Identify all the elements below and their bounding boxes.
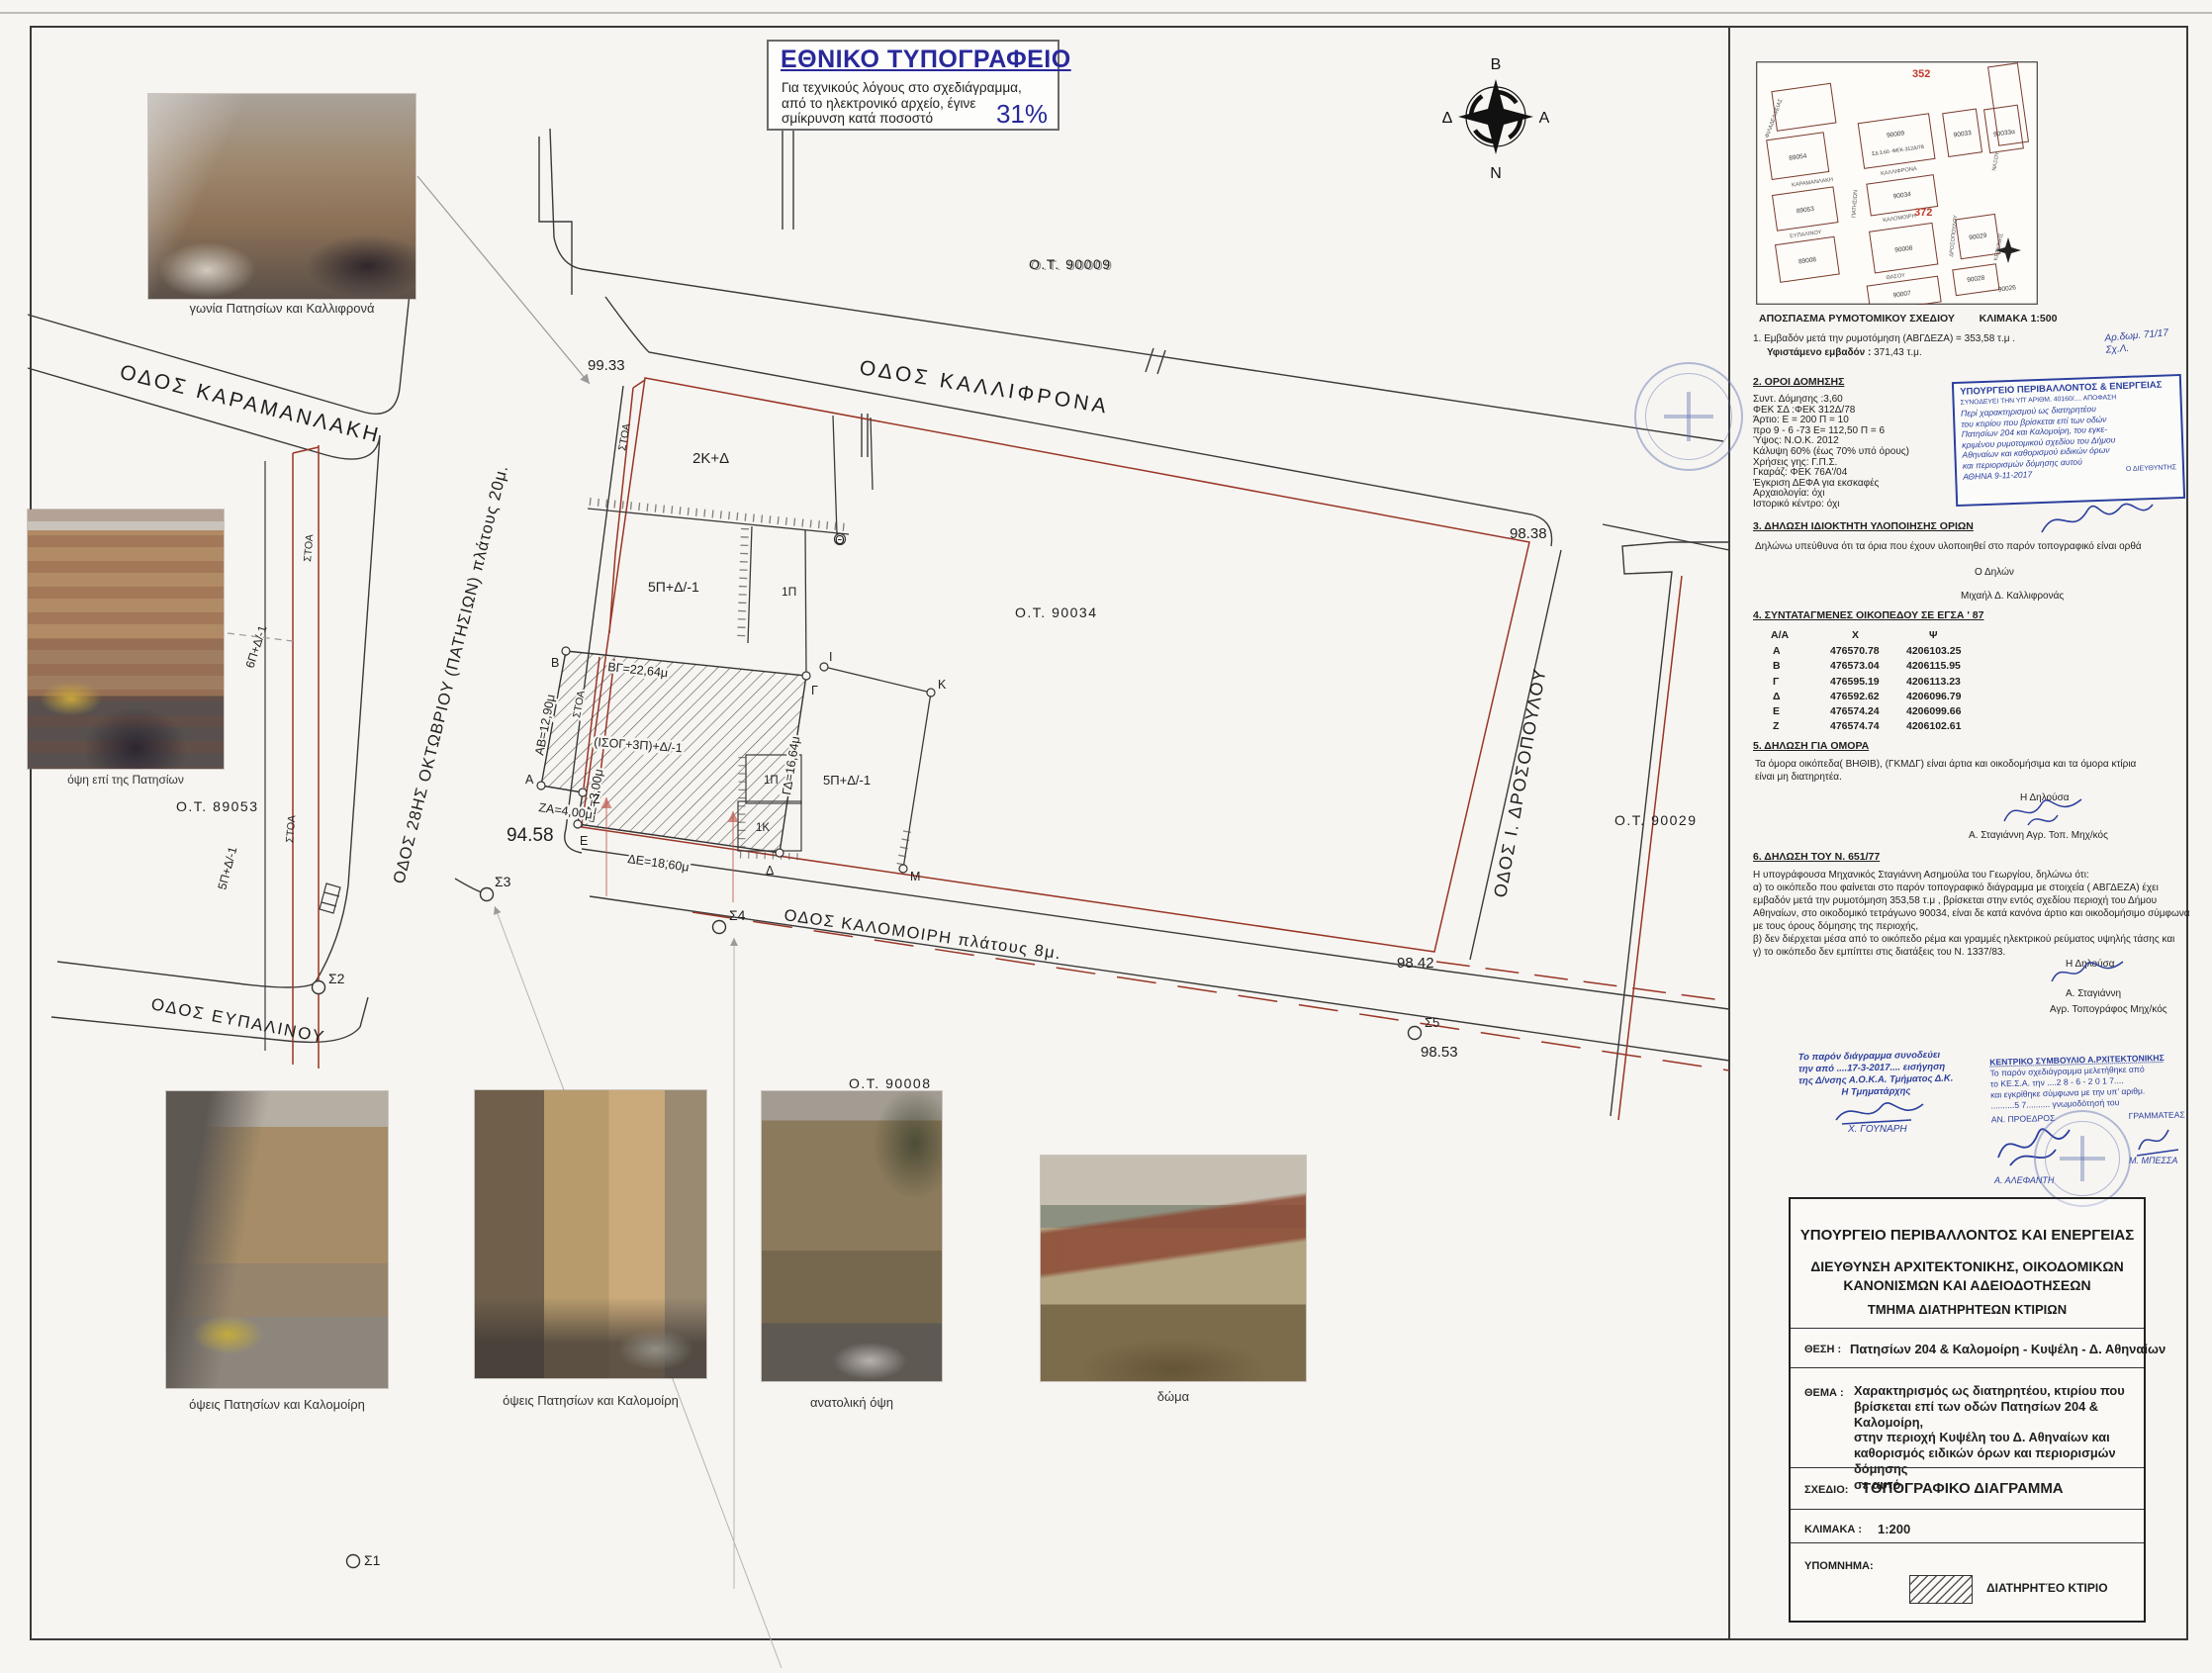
- building-5pd-outline: [741, 526, 806, 676]
- photo-caption: δώμα: [1041, 1389, 1306, 1404]
- street-label-kalifrona: ΟΔΟΣ ΚΑΛΛΙΦΡΟΝΑ: [858, 356, 1111, 418]
- building-right-5pd-outline: [824, 667, 931, 869]
- building-label-1p-upper: 1Π: [782, 585, 796, 599]
- seal-cross: [2060, 1157, 2104, 1161]
- section5-body: Τα όμορα οικόπεδα( ΒΗΘΙΒ), (ΓΚΜΔΓ) είναι…: [1755, 758, 2136, 784]
- topographic-diagram-sheet: ΟΔΟΣ ΚΑΛΛΙΦΡΟΝΑ ΟΔΟΣ ΚΑΡΑΜΑΝΛΑΚΗ ΟΔΟΣ 28…: [0, 0, 2212, 1673]
- street-label-kalomoiri: ΟΔΟΣ ΚΑΛΟΜΟΙΡΗ πλάτους 8μ.: [783, 906, 1062, 963]
- section6-declarer-name: Α. Σταγιάννη: [2066, 987, 2121, 1000]
- inset-city-map: 89054 90009 ΣΔ 3.60 -ΦΕΚ-312Δ/78 90033 9…: [1756, 61, 2038, 305]
- elevation-9853: 98.53: [1421, 1044, 1458, 1061]
- elevation-9842: 98.42: [1397, 955, 1434, 972]
- coordinates-table: Α/Α Χ Ψ Α476570.784206103.25 Β476573.044…: [1753, 629, 1990, 736]
- building-label-5pd-left: 5Π+Δ/-1: [215, 845, 239, 891]
- sxedio-value: ΤΟΠΟΓΡΑΦΙΚΟ ΔΙΑΓΡΑΜΜΑ: [1862, 1480, 2064, 1497]
- thema-value: Χαρακτηρισμός ως διατηρητέου, κτιρίου πο…: [1854, 1383, 2135, 1493]
- survey-label-s2: Σ2: [328, 971, 345, 986]
- coords-row: Ε476574.244206099.66: [1753, 705, 1990, 720]
- map-caption-row: ΑΠΟΣΠΑΣΜΑ ΡΥΜΟΤΟΜΙΚΟΥ ΣΧΕΔΙΟΥ ΚΛΙΜΑΚΑ 1:…: [1759, 313, 2057, 325]
- round-seal-faded: [1634, 362, 1743, 471]
- stoa-label-4: ΣΤΟΑ: [284, 815, 298, 844]
- notice-line2: από το ηλεκτρονικό αρχείο, έγινε: [782, 96, 975, 111]
- svg-text:Θ: Θ: [835, 533, 845, 547]
- accompany-name: Χ. ΓΟΥΝΑΡΗ: [1848, 1124, 1907, 1135]
- survey-label-s1: Σ1: [364, 1552, 381, 1568]
- stamp-date: ΑΘΗΝΑ 9-11-2017: [1963, 469, 2032, 481]
- photo-roof-terrace: [1041, 1156, 1306, 1381]
- building-label-5pd-right: 5Π+Δ/-1: [823, 773, 871, 788]
- stamp-role: Ο ΔΙΕΥΘΥΝΤΗΣ: [2126, 464, 2176, 476]
- stoa-label-3: ΣΤΟΑ: [302, 534, 316, 563]
- block-label-ot90034: Ο.Τ. 90034: [1015, 604, 1098, 620]
- legend-item-label: ΔΙΑΤΗΡΗΤΈΟ ΚΤΙΡΙΟ: [1986, 1581, 2108, 1595]
- klimaka-label: ΚΛΙΜΑΚΑ :: [1804, 1524, 1862, 1535]
- coords-row: Δ476592.624206096.79: [1753, 691, 1990, 705]
- svg-text:Ε: Ε: [580, 834, 588, 848]
- section5-signature: [1998, 791, 2087, 833]
- compass-east-letter: Α: [1539, 110, 1550, 127]
- kesa-round-seal: [2034, 1110, 2131, 1207]
- map-caption: ΑΠΟΣΠΑΣΜΑ ΡΥΜΟΤΟΜΙΚΟΥ ΣΧΕΔΙΟΥ: [1759, 313, 1955, 325]
- block-label-ot90029: Ο.Τ. 90029: [1614, 812, 1698, 828]
- svg-text:ΔΕ=18,60μ: ΔΕ=18,60μ: [627, 852, 691, 875]
- titleblock-ministry: ΥΠΟΥΡΓΕΙΟ ΠΕΡΙΒΑΛΛΟΝΤΟΣ ΚΑΙ ΕΝΕΡΓΕΙΑΣ: [1791, 1227, 2144, 1244]
- survey-label-s5: Σ5: [1425, 1015, 1439, 1030]
- section6-title: 6. ΔΗΛΩΣΗ ΤΟΥ Ν. 651/77: [1753, 851, 1880, 863]
- photo-corner-patision-kalifrona: [148, 94, 415, 299]
- notice-line1: Για τεχνικούς λόγους στο σχεδιάγραμμα,: [782, 80, 1022, 95]
- titleblock-directorate-2: ΚΑΝΟΝΙΣΜΩΝ ΚΑΙ ΑΔΕΙΟΔΟΤΗΣΕΩΝ: [1791, 1277, 2144, 1293]
- section2-terms-list: Συντ. Δόμησης :3,60ΦΕΚ ΣΔ :ΦΕΚ 312Δ/78 Ά…: [1753, 395, 1909, 511]
- section3-body: Δηλώνω υπεύθυνα ότι τα όρια που έχουν υλ…: [1755, 540, 2186, 553]
- coords-row: Α476570.784206103.25: [1753, 645, 1990, 660]
- svg-text:Δ: Δ: [766, 864, 774, 878]
- elevation-9458: 94.58: [507, 825, 554, 846]
- block-label-ot90009: Ο.Τ. 90009: [1029, 256, 1112, 272]
- street-label-eupalinou: ΟΔΟΣ ΕΥΠΑΛΙΝΟΥ: [149, 994, 326, 1047]
- building-label-5pd: 5Π+Δ/-1: [648, 579, 699, 595]
- photo-caption: όψη επί της Πατησίων: [28, 773, 224, 787]
- stoa-label-1: ΣΤΟΑ: [616, 422, 633, 451]
- coords-row: Β476573.044206115.95: [1753, 660, 1990, 675]
- survey-label-s3: Σ3: [495, 874, 511, 889]
- photo-patision-facade: [28, 510, 224, 769]
- section3-declarer-name: Μιχαήλ Δ. Καλλιφρονάς: [1961, 590, 2064, 603]
- titleblock-rule: [1791, 1467, 2144, 1468]
- street-label-karamanlaki: ΟΔΟΣ ΚΑΡΑΜΑΝΛΑΚΗ: [118, 361, 383, 448]
- section5-declarer-name: Α. Σταγιάννη Αγρ. Τοπ. Μηχ/κός: [1969, 829, 2108, 842]
- north-compass: Β Ν Δ Α: [1422, 44, 1570, 187]
- ypomnima-label: ΥΠΟΜΝΗΜΑ:: [1804, 1560, 1874, 1572]
- red-boundary-lines: [293, 378, 1729, 1120]
- section1-line2: Υφιστάμενο εμβαδόν : 371,43 τ.μ.: [1767, 346, 1922, 359]
- svg-text:Κ: Κ: [938, 678, 947, 692]
- map-ref-352: 352: [1912, 68, 1930, 80]
- section6-declarer-title: Αγρ. Τοπογράφος Μηχ/κός: [2050, 1003, 2167, 1016]
- svg-text:Γ: Γ: [811, 684, 818, 697]
- thesi-label: ΘΕΣΗ :: [1804, 1344, 1841, 1355]
- notice-line3: σμίκρυνση κατά ποσοστό: [782, 111, 933, 126]
- kesa-name-right: Μ. ΜΠΕΣΣΑ: [2129, 1156, 2177, 1165]
- photo-caption: γωνία Πατησίων και Καλλιφρονά: [153, 301, 411, 316]
- section5-title: 5. ΔΗΛΩΣΗ ΓΙΑ ΟΜΟΡΑ: [1753, 740, 1869, 752]
- photo-patision-kalomoiri-1: [166, 1091, 388, 1388]
- survey-label-s4: Σ4: [729, 907, 746, 923]
- accompany-stamp: Το παρόν διάγραμμα συνοδεύει την από ...…: [1798, 1050, 1954, 1100]
- street-label-patision: ΟΔΟΣ 28ΗΣ ΟΚΤΩΒΡΙΟΥ (ΠΑΤΗΣΙΩΝ) πλάτους 2…: [390, 463, 511, 885]
- building-label-2kd: 2Κ+Δ: [692, 450, 729, 467]
- compass-south-letter: Ν: [1490, 165, 1502, 182]
- svg-text:Ι: Ι: [829, 650, 832, 664]
- compass-north-letter: Β: [1491, 56, 1502, 73]
- map-ref-372: 372: [1914, 207, 1932, 219]
- coords-row: Γ476595.194206113.23: [1753, 676, 1990, 691]
- titleblock-rule: [1791, 1367, 2144, 1368]
- street-kalomoiri-lines: [455, 849, 1729, 1061]
- elevation-9933: 99.33: [588, 357, 625, 374]
- section1-line1: 1. Εμβαδόν μετά την ρυμοτόμηση (ΑΒΓΔΕΖΑ)…: [1753, 332, 2015, 345]
- coords-row: Ζ476574.744206102.61: [1753, 720, 1990, 735]
- legend-hatch-swatch: [1909, 1575, 1973, 1604]
- map-caption-scale: ΚΛΙΜΑΚΑ 1:500: [1980, 313, 2058, 325]
- ministry-signature: [2038, 495, 2157, 540]
- ministry-approval-stamp: ΥΠΟΥΡΓΕΙΟ ΠΕΡΙΒΑΛΛΟΝΤΟΣ & ΕΝΕΡΓΕΙΑΣ ΣΥΝΟ…: [1952, 374, 2185, 507]
- section6-body: Η υπογράφουσα Μηχανικός Σταγιάννη Ασημού…: [1753, 869, 2190, 959]
- elevation-9838: 98.38: [1510, 525, 1547, 542]
- photo-caption: όψεις Πατησίων και Καλομοίρη: [166, 1397, 388, 1412]
- svg-text:Ζ: Ζ: [593, 792, 600, 806]
- block-label-ot89053: Ο.Τ. 89053: [176, 798, 259, 814]
- photo-leader-arrows: [228, 176, 782, 1668]
- section3-title: 3. ΔΗΛΩΣΗ ΙΔΙΟΚΤΗΤΗ ΥΛΟΠΟΙΗΣΗΣ ΟΡΙΩΝ: [1753, 520, 1974, 532]
- thema-label: ΘΕΜΑ :: [1804, 1387, 1844, 1399]
- photo-caption: ανατολική όψη: [762, 1395, 942, 1410]
- block-label-ot90008: Ο.Τ. 90008: [849, 1075, 932, 1091]
- title-block: ΥΠΟΥΡΓΕΙΟ ΠΕΡΙΒΑΛΛΟΝΤΟΣ ΚΑΙ ΕΝΕΡΓΕΙΑΣ ΔΙ…: [1789, 1197, 2146, 1623]
- section2-title: 2. ΟΡΟΙ ΔΟΜΗΣΗΣ: [1753, 376, 1844, 388]
- photo-patision-kalomoiri-2: [475, 1090, 706, 1378]
- titleblock-rule: [1791, 1328, 2144, 1329]
- notice-title: ΕΘΝΙΚΟ ΤΥΠΟΓΡΑΦΕΙΟ: [781, 46, 1071, 74]
- svg-text:Β: Β: [551, 656, 559, 670]
- thesi-value: Πατησίων 204 & Καλομοίρη - Κυψέλη - Δ. Α…: [1850, 1342, 2166, 1356]
- notice-percent: 31%: [996, 99, 1048, 130]
- section6-signature: [2048, 956, 2127, 989]
- section4-title: 4. ΣΥΝΤΑΤΑΓΜΕΝΕΣ ΟΙΚΟΠΕΔΟΥ ΣΕ ΕΓΣΑ ' 87: [1753, 609, 1983, 621]
- titleblock-department: ΤΜΗΜΑ ΔΙΑΤΗΡΗΤΕΩΝ ΚΤΙΡΙΩΝ: [1791, 1302, 2144, 1317]
- klimaka-value: 1:200: [1878, 1522, 1910, 1536]
- section3-declarer-label: Ο Δηλών: [1975, 566, 2014, 579]
- titleblock-rule: [1791, 1542, 2144, 1543]
- compass-west-letter: Δ: [1442, 110, 1453, 127]
- sxedio-label: ΣΧΕΔΙΟ:: [1804, 1484, 1848, 1496]
- street-label-drosopoulou: ΟΔΟΣ Ι. ΔΡΟΣΟΠΟΥΛΟΥ: [1490, 667, 1550, 899]
- titleblock-rule: [1791, 1509, 2144, 1510]
- national-printing-notice-box: ΕΘΝΙΚΟ ΤΥΠΟΓΡΑΦΕΙΟ Για τεχνικούς λόγους …: [767, 40, 1060, 131]
- svg-text:Α: Α: [525, 773, 534, 787]
- building-label-1k-box: 1Κ: [756, 822, 770, 834]
- svg-text:Μ: Μ: [910, 870, 920, 883]
- photo-caption: όψεις Πατησίων και Καλομοίρη: [475, 1393, 706, 1408]
- photo-east-elevation: [762, 1091, 942, 1381]
- seal-cross: [1664, 415, 1714, 418]
- titleblock-directorate-1: ΔΙΕΥΘΥΝΣΗ ΑΡΧΙΤΕΚΤΟΝΙΚΗΣ, ΟΙΚΟΔΟΜΙΚΩΝ: [1791, 1258, 2144, 1274]
- stamp-handwriting: Περί χαρακτηρισμού ως διατηρητέουτου κτι…: [1961, 401, 2176, 470]
- building-label-1p-box: 1Π: [764, 775, 779, 787]
